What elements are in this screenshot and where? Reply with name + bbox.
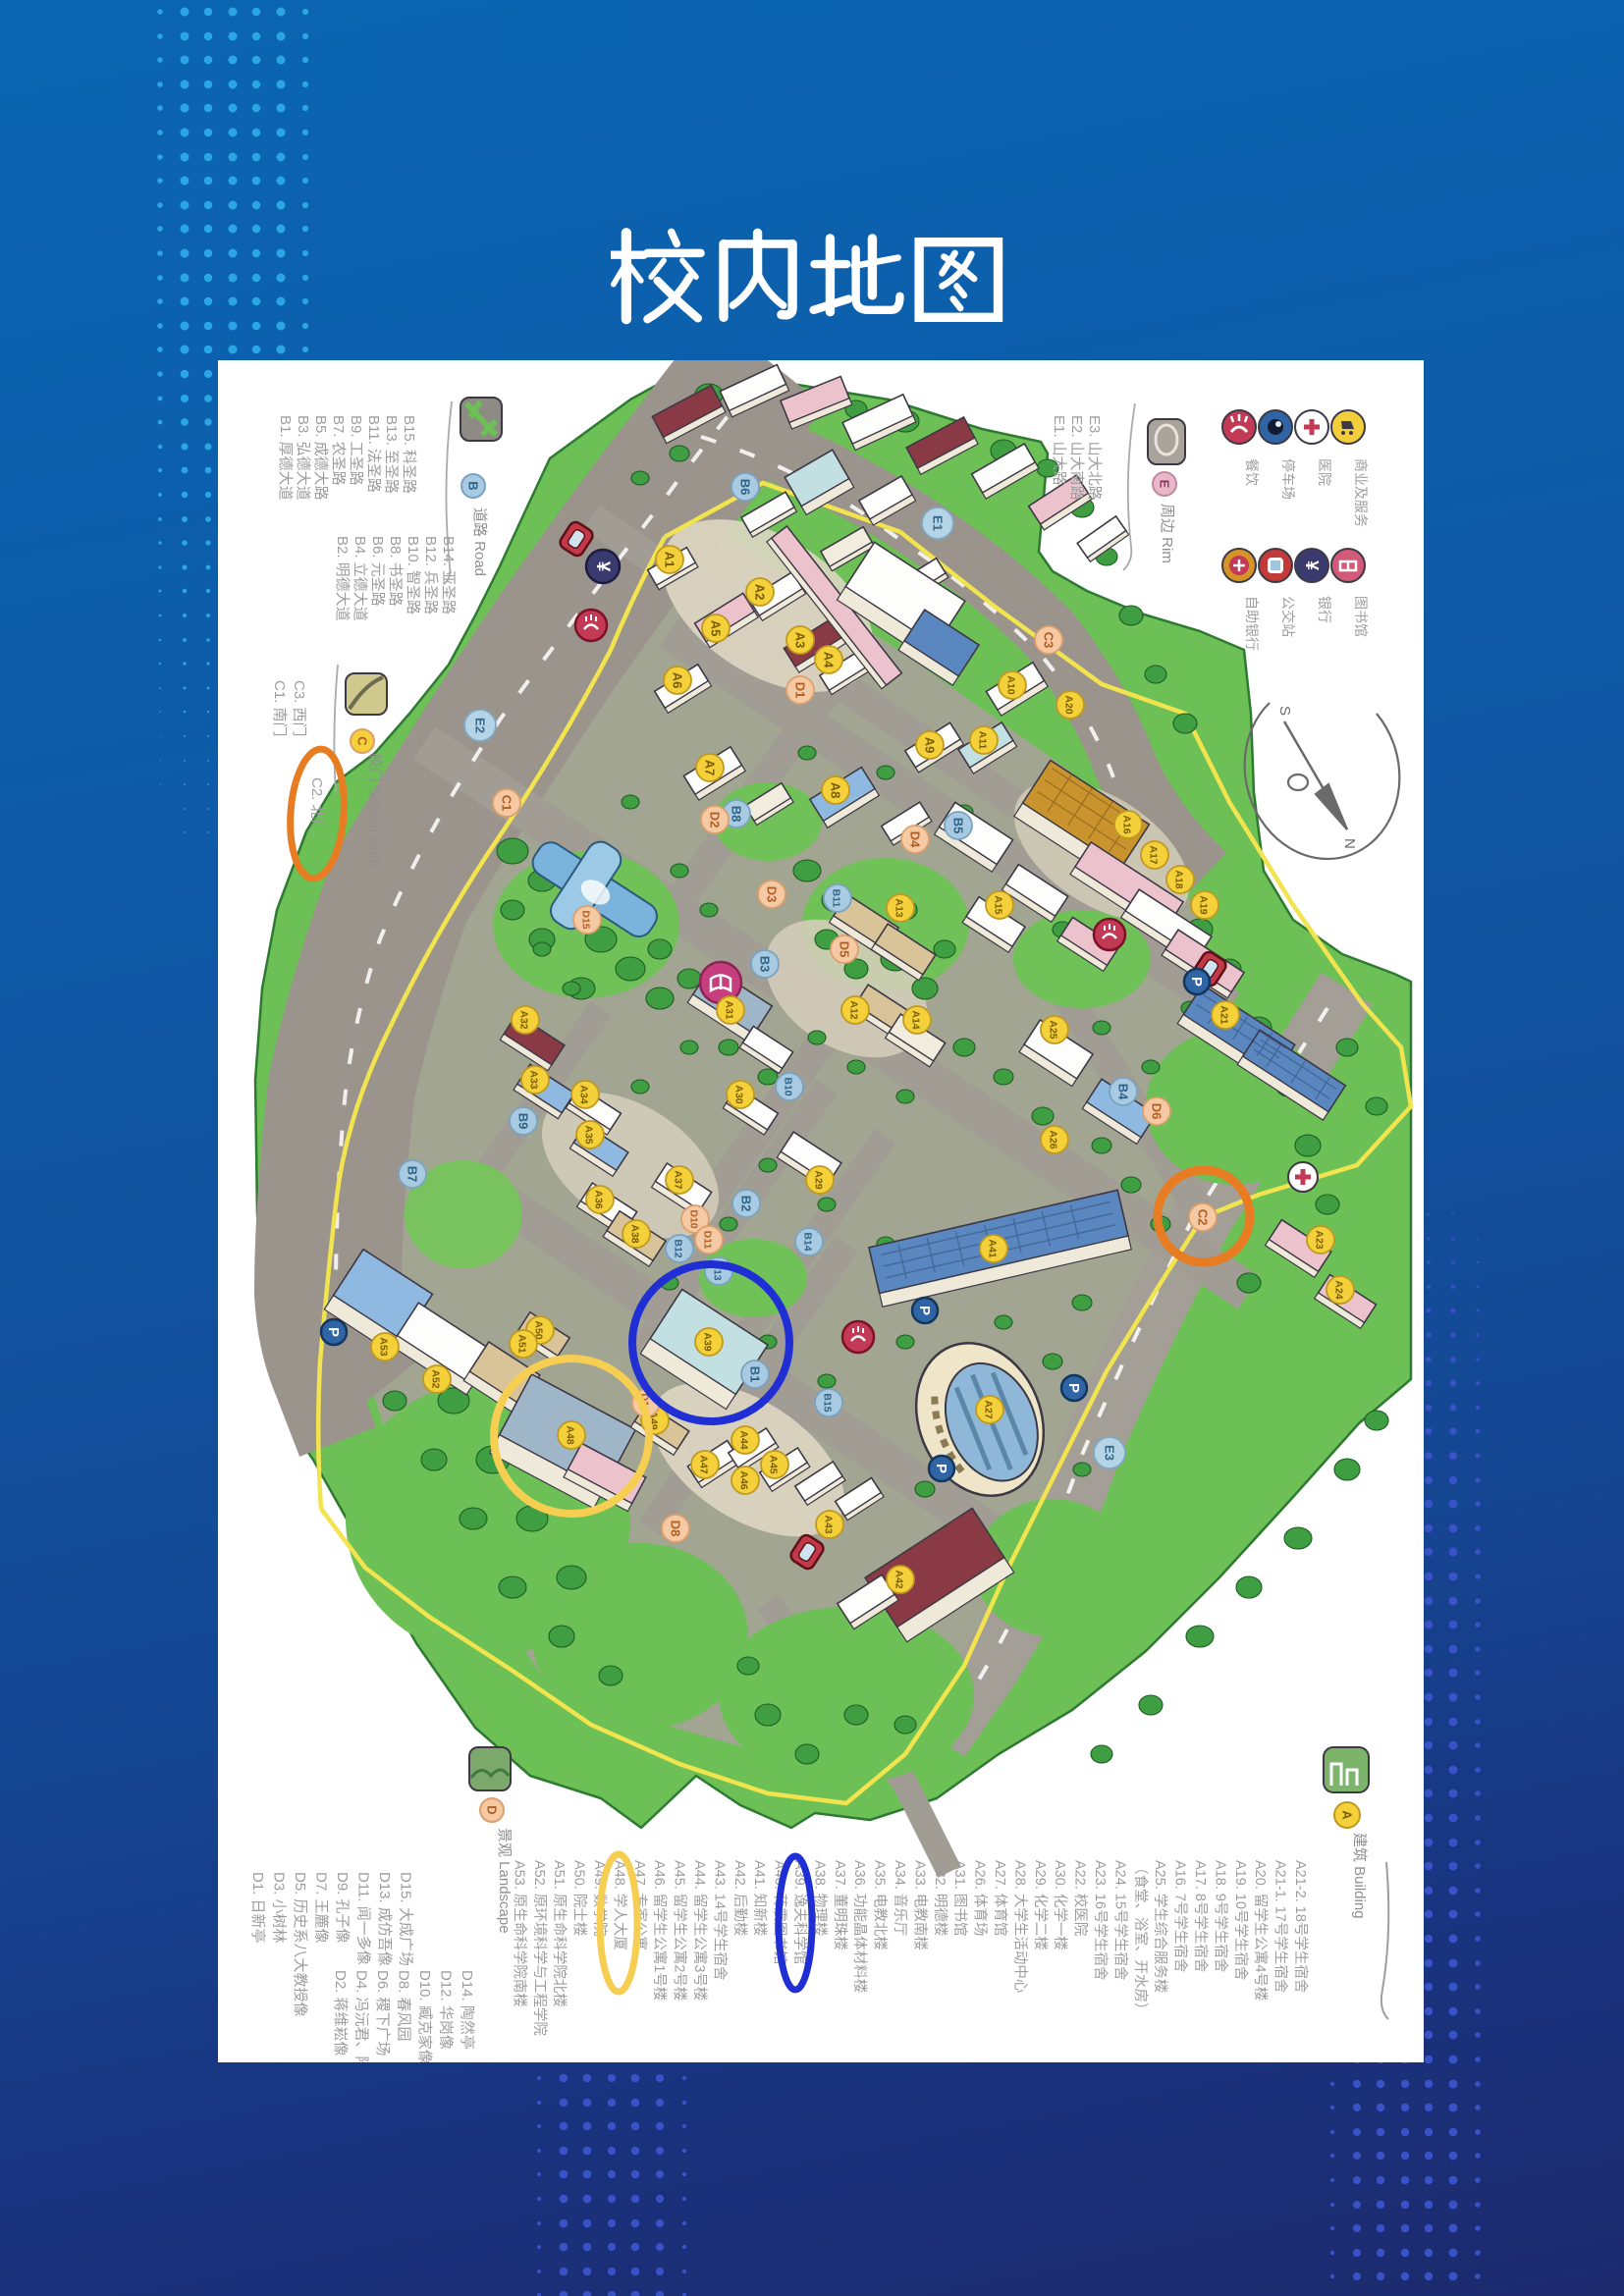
svg-text:A31. 图书馆: A31. 图书馆 [951, 1860, 968, 1936]
svg-text:A15: A15 [993, 895, 1004, 914]
svg-text:D15: D15 [580, 910, 592, 929]
svg-text:A17. 8号学生宿舍: A17. 8号学生宿舍 [1192, 1860, 1209, 1973]
svg-text:A18. 9号学生宿舍: A18. 9号学生宿舍 [1212, 1860, 1228, 1973]
svg-text:A42: A42 [893, 1570, 905, 1588]
svg-text:A50. 院士楼: A50. 院士楼 [571, 1860, 588, 1936]
svg-text:D15. 大成广场: D15. 大成广场 [398, 1872, 414, 1966]
svg-text:公交站: 公交站 [1280, 596, 1296, 637]
svg-text:D10: D10 [688, 1209, 700, 1228]
svg-text:A19: A19 [1198, 895, 1210, 914]
svg-text:A24: A24 [1333, 1280, 1345, 1299]
svg-text:B6. 元圣路: B6. 元圣路 [369, 536, 386, 607]
svg-text:C2: C2 [1196, 1209, 1211, 1226]
svg-text:A19. 10号学生宿舍: A19. 10号学生宿舍 [1232, 1860, 1249, 1981]
svg-text:B: B [466, 481, 481, 490]
svg-text:D1. 日新亭: D1. 日新亭 [249, 1872, 267, 1944]
svg-text:D7. 王簏像: D7. 王簏像 [313, 1872, 330, 1944]
svg-text:A44. 留学生公寓3号楼: A44. 留学生公寓3号楼 [691, 1860, 709, 2001]
svg-text:A37. 董明珠楼: A37. 董明珠楼 [832, 1860, 848, 1950]
svg-text:（食堂、浴室、开水房）: （食堂、浴室、开水房） [1132, 1860, 1149, 2017]
svg-text:D6. 稷下广场: D6. 稷下广场 [374, 1970, 391, 2056]
svg-text:D14. 陶然亭: D14. 陶然亭 [459, 1970, 476, 2050]
svg-text:A53: A53 [378, 1337, 390, 1356]
svg-text:A8: A8 [829, 782, 843, 799]
svg-text:A44: A44 [738, 1430, 750, 1449]
svg-text:B15: B15 [822, 1393, 834, 1412]
svg-text:A1: A1 [663, 552, 677, 568]
svg-text:A42. 后勤楼: A42. 后勤楼 [731, 1860, 748, 1936]
svg-text:A35: A35 [583, 1125, 595, 1144]
svg-text:A41: A41 [987, 1239, 999, 1257]
svg-text:A29. 化学二楼: A29. 化学二楼 [1032, 1860, 1049, 1950]
svg-text:A7: A7 [703, 760, 718, 776]
svg-text:P: P [916, 1306, 933, 1315]
svg-text:C2. 北门: C2. 北门 [308, 777, 325, 834]
svg-text:自助银行: 自助银行 [1244, 596, 1260, 651]
svg-text:A34: A34 [578, 1085, 590, 1103]
svg-text:P: P [1188, 977, 1205, 987]
svg-text:B13. 至圣路: B13. 至圣路 [383, 415, 400, 494]
svg-text:A20. 留学生公寓4号楼: A20. 留学生公寓4号楼 [1252, 1860, 1270, 2001]
svg-text:B5. 成德大路: B5. 成德大路 [312, 415, 330, 501]
svg-text:A21-2. 18号学生宿舍: A21-2. 18号学生宿舍 [1292, 1860, 1309, 1994]
svg-text:B14. 亚圣路: B14. 亚圣路 [440, 536, 457, 614]
svg-text:A29: A29 [813, 1170, 825, 1189]
svg-text:C3. 西门: C3. 西门 [291, 680, 307, 737]
svg-text:A51: A51 [516, 1334, 528, 1353]
svg-text:P: P [933, 1464, 949, 1473]
svg-text:A23. 16号学生宿舍: A23. 16号学生宿舍 [1092, 1860, 1109, 1981]
svg-text:A14: A14 [910, 1010, 922, 1029]
svg-text:B12: B12 [673, 1239, 684, 1257]
svg-text:A16: A16 [1121, 815, 1133, 833]
svg-text:D13. 成仿吾像: D13. 成仿吾像 [376, 1872, 393, 1966]
svg-text:A53. 原生命科学院南楼: A53. 原生命科学院南楼 [511, 1860, 528, 2007]
svg-text:A16. 7号学生宿舍: A16. 7号学生宿舍 [1172, 1860, 1189, 1973]
svg-text:D5: D5 [838, 941, 852, 958]
svg-text:B8. 书圣路: B8. 书圣路 [387, 536, 404, 607]
svg-text:D6: D6 [1150, 1103, 1164, 1120]
svg-text:¥: ¥ [592, 561, 613, 572]
svg-text:E3: E3 [1103, 1445, 1117, 1461]
svg-text:¥: ¥ [1302, 561, 1322, 570]
svg-text:A43. 14号学生宿舍: A43. 14号学生宿舍 [711, 1860, 728, 1981]
svg-text:D8: D8 [669, 1521, 683, 1537]
svg-text:B5: B5 [951, 818, 966, 834]
svg-text:A17: A17 [1148, 845, 1160, 864]
svg-text:A38: A38 [629, 1224, 641, 1243]
svg-text:A32. 明德楼: A32. 明德楼 [932, 1860, 948, 1936]
svg-text:A35. 电教北楼: A35. 电教北楼 [872, 1860, 889, 1950]
svg-text:A26. 体育场: A26. 体育场 [972, 1860, 989, 1936]
svg-text:B12. 兵圣路: B12. 兵圣路 [422, 536, 439, 614]
svg-text:B1. 厚德大道: B1. 厚德大道 [277, 415, 295, 501]
svg-text:图书馆: 图书馆 [1353, 596, 1369, 637]
svg-text:B8: B8 [730, 806, 744, 823]
svg-text:D4: D4 [908, 831, 923, 848]
svg-text:D8. 春风园: D8. 春风园 [396, 1970, 412, 2042]
svg-text:D11. 闻一多像: D11. 闻一多像 [355, 1872, 372, 1965]
svg-text:A46. 留学生公寓1号楼: A46. 留学生公寓1号楼 [651, 1860, 669, 2001]
svg-text:A12: A12 [848, 1000, 860, 1019]
svg-text:A: A [1340, 1810, 1355, 1820]
svg-text:A3: A3 [793, 632, 808, 649]
svg-text:A11: A11 [977, 731, 989, 750]
svg-text:A51. 原生命科学院北楼: A51. 原生命科学院北楼 [551, 1860, 568, 2007]
svg-text:B10: B10 [783, 1077, 794, 1095]
svg-text:建筑 Building: 建筑 Building [1351, 1833, 1368, 1919]
svg-text:A46: A46 [738, 1470, 750, 1489]
svg-text:A33: A33 [528, 1070, 540, 1089]
svg-text:A32: A32 [518, 1010, 530, 1029]
svg-text:B3: B3 [758, 956, 773, 973]
svg-text:A10: A10 [1005, 675, 1017, 694]
svg-text:A18: A18 [1173, 870, 1185, 888]
svg-text:A52: A52 [430, 1369, 442, 1388]
svg-text:周边 Rim: 周边 Rim [1159, 504, 1175, 563]
svg-text:E2: E2 [473, 718, 488, 733]
svg-text:A47: A47 [698, 1455, 710, 1473]
svg-text:A2: A2 [753, 584, 768, 601]
svg-text:P: P [1065, 1383, 1082, 1393]
svg-text:停车场: 停车场 [1280, 458, 1296, 500]
svg-text:E1. 山大路: E1. 山大路 [1051, 415, 1067, 486]
svg-text:B2. 明德大道: B2. 明德大道 [334, 536, 352, 621]
svg-text:P: P [325, 1327, 342, 1337]
svg-text:A30. 化学一楼: A30. 化学一楼 [1052, 1860, 1068, 1950]
svg-text:D: D [485, 1805, 500, 1814]
svg-text:A22. 校医院: A22. 校医院 [1072, 1860, 1089, 1937]
svg-text:医院: 医院 [1317, 458, 1332, 486]
svg-text:A33. 电教南楼: A33. 电教南楼 [911, 1860, 928, 1950]
svg-text:银行: 银行 [1317, 596, 1332, 623]
svg-text:D2. 蒋维崧像: D2. 蒋维崧像 [332, 1970, 349, 2056]
svg-text:A20: A20 [1063, 695, 1075, 714]
svg-text:B4: B4 [1116, 1084, 1131, 1100]
svg-text:景观 Landscape: 景观 Landscape [496, 1828, 513, 1934]
svg-text:A26: A26 [1048, 1130, 1059, 1148]
svg-text:B6: B6 [738, 479, 753, 496]
svg-text:D3. 小树林: D3. 小树林 [271, 1872, 288, 1944]
svg-text:B7. 农圣路: B7. 农圣路 [330, 415, 347, 486]
svg-text:A36. 功能晶体材料楼: A36. 功能晶体材料楼 [851, 1860, 868, 1993]
svg-text:道路 Road: 道路 Road [471, 507, 488, 576]
svg-text:A52. 原环境科学与工程学院: A52. 原环境科学与工程学院 [531, 1860, 549, 2036]
svg-text:A13: A13 [893, 898, 905, 917]
svg-text:A37: A37 [673, 1170, 684, 1189]
svg-text:A25. 学生综合服务楼: A25. 学生综合服务楼 [1152, 1860, 1168, 1993]
svg-text:A21-1. 17号学生宿舍: A21-1. 17号学生宿舍 [1272, 1860, 1289, 1994]
svg-text:A45. 留学生公寓2号楼: A45. 留学生公寓2号楼 [672, 1860, 689, 2001]
svg-text:A36: A36 [593, 1190, 605, 1208]
svg-text:B3. 弘德大道: B3. 弘德大道 [295, 415, 312, 501]
svg-text:B11: B11 [831, 889, 842, 908]
svg-text:餐饮: 餐饮 [1244, 458, 1260, 486]
svg-text:商业及服务: 商业及服务 [1353, 458, 1369, 527]
svg-text:C: C [355, 736, 370, 746]
svg-text:E3. 山大北路: E3. 山大北路 [1086, 415, 1103, 501]
svg-text:D10. 臧克家像: D10. 臧克家像 [416, 1970, 434, 2062]
svg-text:B15. 科圣路: B15. 科圣路 [401, 415, 417, 494]
svg-text:B9. 工圣路: B9. 工圣路 [348, 415, 364, 486]
svg-text:A9: A9 [923, 737, 938, 754]
svg-text:B1: B1 [748, 1366, 763, 1383]
svg-text:C3: C3 [1042, 632, 1056, 649]
svg-text:A5: A5 [709, 620, 724, 637]
svg-text:N: N [1341, 838, 1358, 849]
svg-text:A43: A43 [823, 1515, 835, 1533]
svg-text:A48. 学人大厦: A48. 学人大厦 [611, 1860, 627, 1950]
svg-text:A28. 大学生活动中心: A28. 大学生活动中心 [1011, 1860, 1028, 1993]
svg-text:A31: A31 [724, 1000, 735, 1019]
svg-text:A45: A45 [768, 1455, 780, 1473]
svg-text:A23: A23 [1314, 1230, 1326, 1249]
svg-text:D9. 孔子像: D9. 孔子像 [334, 1872, 351, 1944]
svg-text:A24. 15号学生宿舍: A24. 15号学生宿舍 [1111, 1860, 1128, 1981]
svg-text:A27: A27 [983, 1400, 995, 1418]
svg-text:A21: A21 [1218, 1005, 1230, 1024]
svg-text:D3: D3 [765, 886, 780, 903]
svg-text:A34. 音乐厅: A34. 音乐厅 [892, 1860, 908, 1936]
svg-text:A30: A30 [733, 1085, 745, 1103]
svg-text:A27. 体育馆: A27. 体育馆 [992, 1860, 1008, 1936]
svg-text:D2: D2 [708, 812, 723, 828]
svg-text:E1: E1 [931, 515, 946, 531]
svg-text:B10. 智圣路: B10. 智圣路 [405, 536, 422, 614]
svg-text:A48: A48 [565, 1425, 576, 1444]
svg-text:A25: A25 [1048, 1020, 1059, 1039]
svg-text:A39: A39 [702, 1332, 714, 1351]
svg-text:B2: B2 [739, 1196, 754, 1212]
svg-text:E: E [1158, 480, 1172, 489]
svg-text:校门 School Gate: 校门 School Gate [366, 753, 383, 868]
svg-text:D11: D11 [702, 1231, 714, 1250]
svg-text:D5. 历史系八大教授像: D5. 历史系八大教授像 [292, 1872, 308, 2017]
svg-text:D4. 冯沅君、陆侃如像: D4. 冯沅君、陆侃如像 [353, 1970, 370, 2062]
svg-text:D12. 华岗像: D12. 华岗像 [438, 1970, 455, 2050]
svg-text:B14: B14 [802, 1232, 814, 1251]
svg-text:B7: B7 [406, 1166, 420, 1183]
svg-text:B11. 法圣路: B11. 法圣路 [365, 415, 382, 493]
svg-text:D1: D1 [793, 682, 808, 699]
svg-text:B9: B9 [516, 1113, 531, 1130]
svg-text:S: S [1276, 706, 1293, 716]
svg-text:A6: A6 [671, 672, 685, 689]
svg-text:C1: C1 [500, 795, 514, 812]
svg-text:A4: A4 [822, 652, 837, 668]
svg-text:B4. 立德大道: B4. 立德大道 [352, 536, 369, 621]
svg-text:A41. 知新楼: A41. 知新楼 [751, 1860, 768, 1936]
svg-text:E2. 山大南路: E2. 山大南路 [1068, 415, 1085, 501]
svg-text:C1. 南门: C1. 南门 [271, 680, 288, 737]
